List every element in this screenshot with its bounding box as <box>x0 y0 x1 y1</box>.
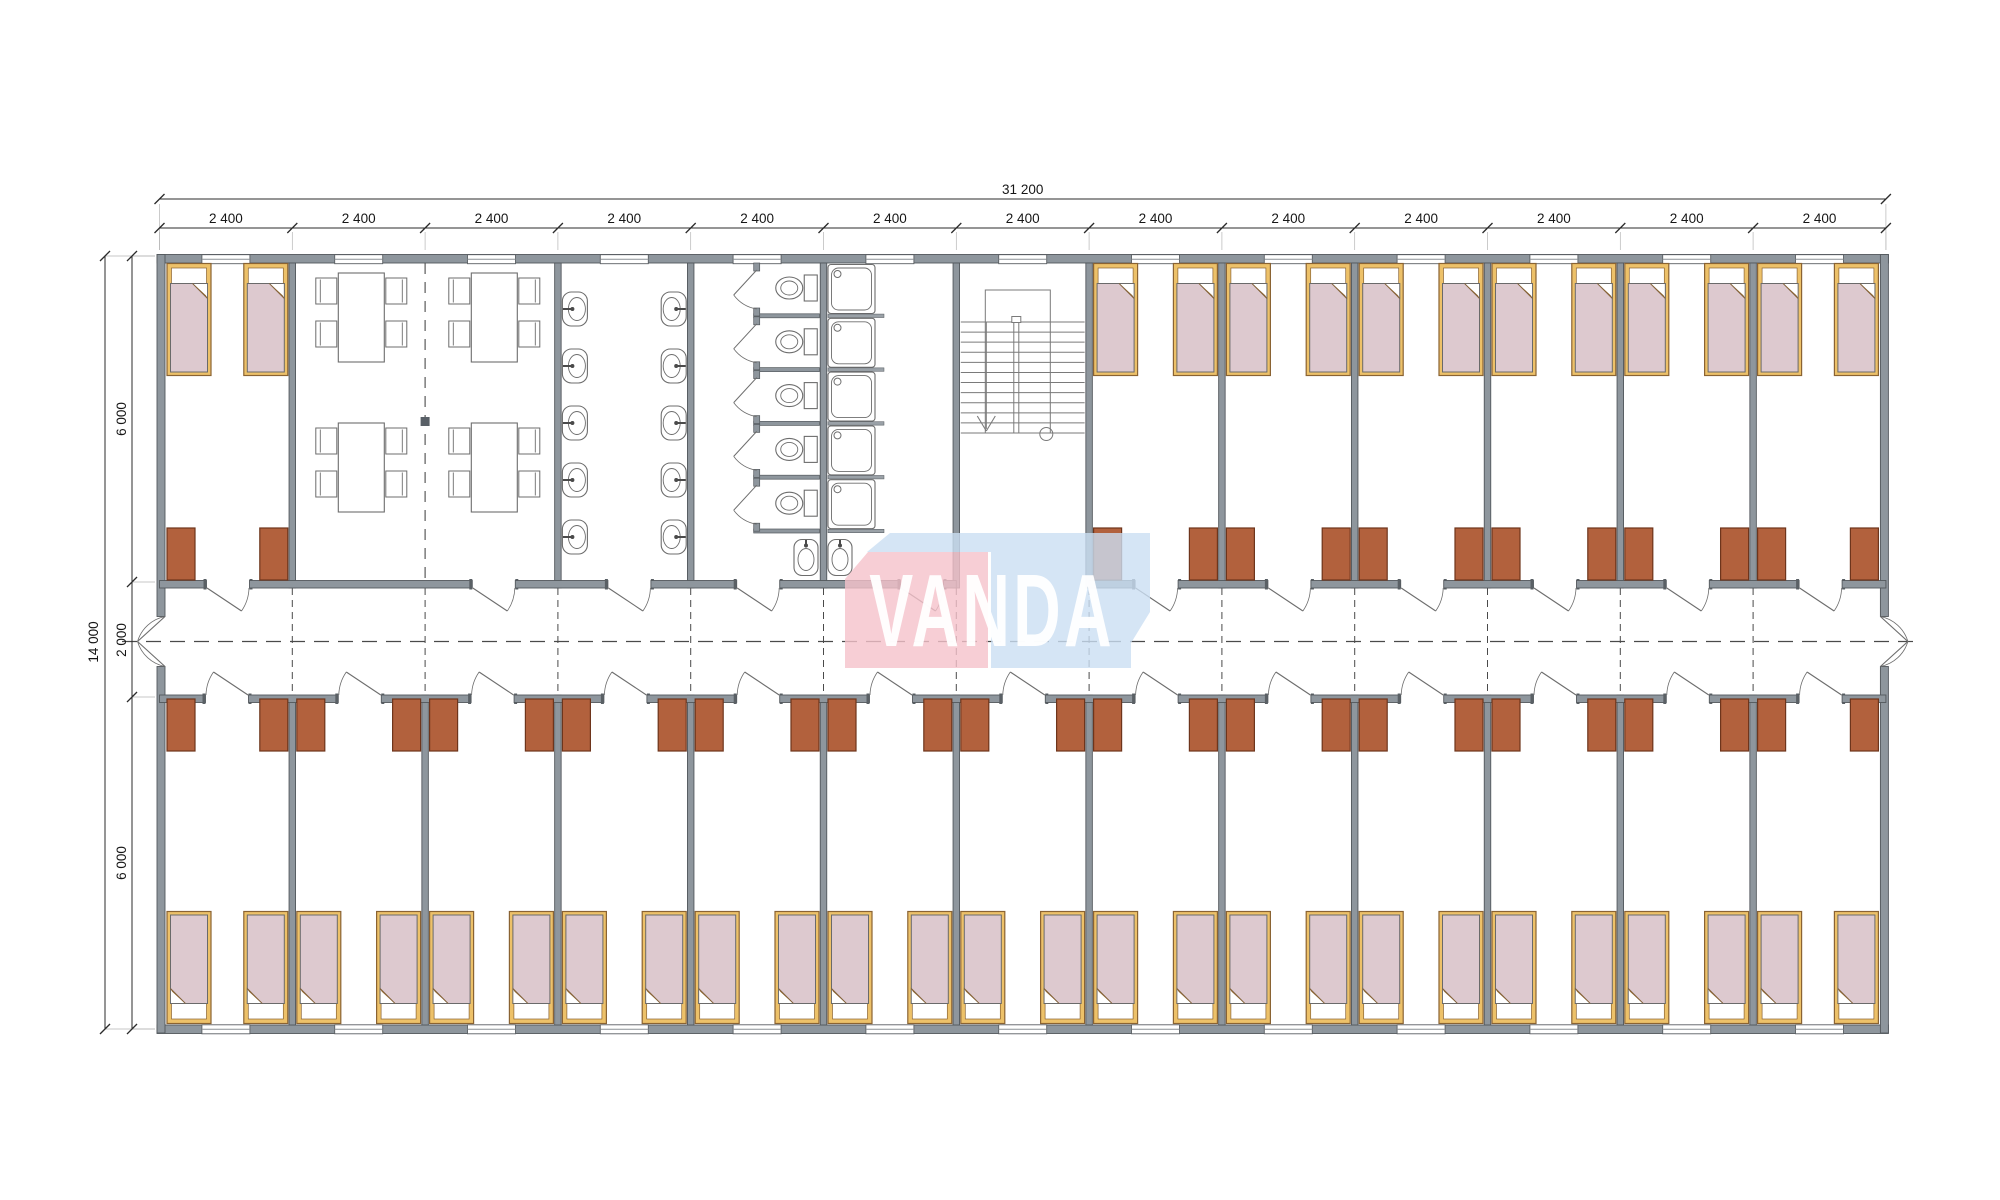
door-swing-arc <box>772 588 780 611</box>
dim-label-total-height: 14 000 <box>86 621 101 662</box>
toilet-tank <box>804 329 817 355</box>
bed-blanket <box>1230 915 1267 1004</box>
bed-icon <box>1758 912 1802 1024</box>
bed-icon <box>1359 912 1403 1024</box>
bed-blanket <box>1177 915 1214 1004</box>
wardrobe <box>1850 699 1878 751</box>
shower-drain <box>834 324 841 331</box>
door-jamb-cap <box>601 694 604 705</box>
bed-blanket <box>1496 284 1533 373</box>
toilet-bowl <box>776 331 803 353</box>
door-jamb-cap <box>1398 694 1401 705</box>
bed-icon <box>1041 912 1085 1024</box>
toilet-tank <box>804 490 817 516</box>
bed-blanket <box>964 915 1001 1004</box>
wardrobe <box>297 699 325 751</box>
bed-blanket <box>1761 284 1798 373</box>
bed-icon <box>1625 264 1669 376</box>
bed-icon <box>908 912 952 1024</box>
sink-tap-dot <box>570 307 574 311</box>
chair <box>519 428 540 454</box>
stall-jamb <box>754 424 760 432</box>
sink-icon <box>661 520 686 554</box>
stair-rail-cap <box>1012 317 1021 323</box>
dim-label-module-width: 2 400 <box>1139 211 1173 226</box>
outer-wall-left <box>157 667 165 1034</box>
stall-jamb <box>754 362 760 370</box>
wardrobe <box>1189 699 1217 751</box>
chair <box>449 428 470 454</box>
wardrobe <box>1758 528 1786 580</box>
dining-table <box>338 273 384 362</box>
bed-icon <box>642 912 686 1024</box>
door-swing-arc <box>472 672 480 695</box>
wardrobe <box>1625 699 1653 751</box>
door-jamb-cap <box>1796 694 1799 705</box>
dim-label-module-width: 2 400 <box>607 211 641 226</box>
toilet-icon <box>776 383 818 409</box>
room-wall-top <box>1351 263 1358 588</box>
wardrobe <box>1850 528 1878 580</box>
bed-blanket <box>1628 915 1665 1004</box>
dim-label-upper-depth: 6 000 <box>114 402 129 436</box>
door-leaf <box>1401 588 1436 611</box>
sink-icon <box>562 520 587 554</box>
door-jamb-cap <box>204 579 207 590</box>
bed-icon <box>1306 912 1350 1024</box>
floor-plan: 31 2002 4002 4002 4002 4002 4002 4002 40… <box>0 0 2000 1200</box>
room-wall-bottom <box>1750 695 1757 1025</box>
room-wall-bottom <box>1484 695 1491 1025</box>
corridor-wall-top <box>1577 581 1667 589</box>
bed-blanket <box>1575 915 1612 1004</box>
room-wall-top <box>289 263 296 588</box>
stall-jamb <box>754 523 760 531</box>
shower-drain <box>834 378 841 385</box>
bed-icon <box>1492 264 1536 376</box>
wardrobe <box>260 528 288 580</box>
wardrobe <box>1492 699 1520 751</box>
corridor-wall-top <box>1444 581 1534 589</box>
bed-icon <box>1572 912 1616 1024</box>
door-leaf <box>1542 672 1577 695</box>
bed-icon <box>1094 912 1138 1024</box>
chair <box>519 471 540 497</box>
dim-label-module-width: 2 400 <box>1006 211 1040 226</box>
stair-opening-outline <box>985 290 1050 433</box>
bed-blanket <box>433 915 470 1004</box>
entrance-door-leaf <box>1880 642 1908 667</box>
door-jamb-cap <box>999 694 1002 705</box>
wardrobe <box>1625 528 1653 580</box>
shower-drain <box>834 432 841 439</box>
chair <box>316 471 337 497</box>
dim-label-module-width: 2 400 <box>1670 211 1704 226</box>
door-swing-arc <box>1436 588 1444 611</box>
stall-door-arc <box>734 403 757 417</box>
bed-blanket <box>832 915 869 1004</box>
wardrobe <box>430 699 458 751</box>
wardrobe <box>924 699 952 751</box>
chair <box>449 278 470 304</box>
door-jamb-cap <box>1663 694 1666 705</box>
door-leaf <box>1674 672 1709 695</box>
chair <box>519 321 540 347</box>
door-jamb-cap <box>1265 579 1268 590</box>
door-leaf <box>479 672 513 695</box>
dim-label-module-width: 2 400 <box>209 211 243 226</box>
room-wall-top <box>1484 263 1491 588</box>
dim-label-module-width: 2 400 <box>1537 211 1571 226</box>
corridor-wall-top <box>1842 581 1886 589</box>
room-wall-bottom <box>953 695 960 1025</box>
stall-partition <box>754 529 820 533</box>
door-jamb-cap <box>1531 579 1534 590</box>
room-wall-top <box>687 263 694 588</box>
room-wall-bottom <box>687 695 694 1025</box>
wardrobe <box>562 699 590 751</box>
shower-drain <box>834 486 841 493</box>
door-swing-arc <box>1569 588 1577 611</box>
room-wall-bottom <box>820 695 827 1025</box>
room-wall-bottom <box>289 695 296 1025</box>
sink-tap-dot <box>674 421 678 425</box>
bed-blanket <box>513 915 550 1004</box>
bed-blanket <box>300 915 337 1004</box>
wardrobe <box>1359 699 1387 751</box>
door-jamb-cap <box>734 579 737 590</box>
stall-door-arc <box>734 510 757 524</box>
wardrobe <box>1758 699 1786 751</box>
bed-icon <box>297 912 341 1024</box>
shower-drain <box>834 271 841 278</box>
stall-jamb <box>754 317 760 325</box>
bed-icon <box>1226 912 1270 1024</box>
door-leaf <box>1807 672 1842 695</box>
shower-partition <box>828 368 884 372</box>
door-jamb-cap <box>1265 694 1268 705</box>
bed-blanket <box>646 915 683 1004</box>
wardrobe <box>393 699 421 751</box>
door-swing-arc <box>1136 672 1144 695</box>
wardrobe <box>961 699 989 751</box>
outer-wall-right <box>1880 255 1888 617</box>
door-swing-arc <box>737 672 745 695</box>
bed-icon <box>562 912 606 1024</box>
bed-icon <box>1758 264 1802 376</box>
bed-icon <box>167 264 211 376</box>
stair-arrowhead <box>986 416 995 431</box>
door-leaf <box>1010 672 1045 695</box>
stall-jamb <box>754 469 760 477</box>
bed-icon <box>1173 264 1217 376</box>
bed-blanket <box>1761 915 1798 1004</box>
door-swing-arc <box>643 588 651 611</box>
stall-partition <box>754 421 820 425</box>
sink-tap-dot <box>570 421 574 425</box>
bed-blanket <box>566 915 603 1004</box>
bed-blanket <box>1363 915 1400 1004</box>
bed-blanket <box>1443 915 1480 1004</box>
dim-label-corridor-width: 2 000 <box>114 623 129 657</box>
shower-partition <box>828 529 884 533</box>
bed-blanket <box>1363 284 1400 373</box>
shower-tray-icon <box>828 426 875 475</box>
door-swing-arc <box>604 672 612 695</box>
sink-icon <box>562 349 587 383</box>
wardrobe <box>1322 699 1350 751</box>
bed-blanket <box>247 284 284 373</box>
bed-blanket <box>1310 284 1347 373</box>
sink-icon <box>794 540 818 576</box>
corridor-wall-top <box>250 581 473 589</box>
chair <box>386 321 407 347</box>
door-leaf <box>1268 588 1303 611</box>
entrance-door-leaf <box>138 642 166 667</box>
dim-label-lower-depth: 6 000 <box>114 846 129 880</box>
wardrobe <box>1359 528 1387 580</box>
door-swing-arc <box>1303 588 1311 611</box>
door-leaf <box>1143 672 1178 695</box>
door-jamb-cap <box>1398 579 1401 590</box>
bed-icon <box>1834 264 1878 376</box>
bed-icon <box>377 912 421 1024</box>
sink-tap-dot <box>674 535 678 539</box>
shower-partition <box>828 475 884 479</box>
toilet-bowl <box>776 385 803 407</box>
stall-jamb <box>754 478 760 486</box>
bed-blanket <box>1838 284 1875 373</box>
dim-label-module-width: 2 400 <box>1404 211 1438 226</box>
shower-tray-icon <box>828 318 875 367</box>
toilet-tank <box>804 275 817 301</box>
bed-blanket <box>1230 284 1267 373</box>
stall-partition <box>754 314 820 318</box>
door-swing-arc <box>1003 672 1011 695</box>
wardrobe <box>1588 699 1616 751</box>
bed-blanket <box>171 284 208 373</box>
bed-icon <box>1226 264 1270 376</box>
toilet-bowl <box>776 438 803 460</box>
door-swing-arc <box>242 588 250 611</box>
bed-icon <box>1306 264 1350 376</box>
staircase <box>961 290 1085 441</box>
bed-icon <box>828 912 872 1024</box>
shower-tray-icon <box>828 480 875 529</box>
bed-icon <box>695 912 739 1024</box>
bed-blanket <box>247 915 284 1004</box>
room-wall-top <box>820 263 827 588</box>
bed-blanket <box>1310 915 1347 1004</box>
door-jamb-cap <box>203 694 206 705</box>
door-swing-arc <box>1800 672 1808 695</box>
door-leaf <box>346 672 381 695</box>
stall-jamb <box>754 308 760 316</box>
toilet-icon <box>776 490 818 516</box>
door-leaf <box>1534 588 1569 611</box>
entrance-door-leaf <box>1880 617 1908 642</box>
door-leaf <box>608 588 643 611</box>
bed-icon <box>1705 912 1749 1024</box>
door-jamb-cap <box>734 694 737 705</box>
door-leaf <box>473 588 508 611</box>
bed-icon <box>775 912 819 1024</box>
wardrobe <box>525 699 553 751</box>
sink-icon <box>661 406 686 440</box>
room-wall-top <box>1617 263 1624 588</box>
bed-icon <box>1572 264 1616 376</box>
toilet-icon <box>776 329 818 355</box>
dim-label-module-width: 2 400 <box>873 211 907 226</box>
door-jamb-cap <box>1531 694 1534 705</box>
stall-jamb <box>754 416 760 424</box>
bed-blanket <box>1177 284 1214 373</box>
wardrobe <box>1226 699 1254 751</box>
bed-icon <box>1705 264 1749 376</box>
bed-icon <box>1439 264 1483 376</box>
room-wall-bottom <box>555 695 562 1025</box>
sink-icon <box>562 463 587 497</box>
stall-door-leaf <box>734 485 757 510</box>
wardrobe <box>167 699 195 751</box>
dim-label-module-width: 2 400 <box>1271 211 1305 226</box>
dim-label-module-width: 2 400 <box>475 211 509 226</box>
door-swing-arc <box>1268 672 1276 695</box>
sink-tap-dot <box>570 535 574 539</box>
bed-blanket <box>1708 284 1745 373</box>
sink-icon <box>562 406 587 440</box>
shower-tray-icon <box>828 265 875 314</box>
bed-icon <box>1492 912 1536 1024</box>
door-swing-arc <box>1834 588 1842 611</box>
sink-icon <box>562 292 587 326</box>
stall-door-leaf <box>734 378 757 403</box>
door-leaf <box>1800 588 1835 611</box>
corridor-wall-top <box>651 581 737 589</box>
wardrobe <box>1094 699 1122 751</box>
bed-icon <box>1359 264 1403 376</box>
stall-partition <box>754 368 820 372</box>
bed-blanket <box>1443 284 1480 373</box>
wardrobe <box>1057 699 1085 751</box>
wardrobe <box>1189 528 1217 580</box>
dining-table <box>471 273 517 362</box>
bed-blanket <box>1838 915 1875 1004</box>
chair <box>449 321 470 347</box>
shower-partition <box>828 422 884 426</box>
sink-tap-dot <box>674 364 678 368</box>
bed-blanket <box>1097 915 1134 1004</box>
dim-label-module-width: 2 400 <box>1803 211 1837 226</box>
door-swing-arc <box>1170 588 1178 611</box>
door-swing-arc <box>206 672 214 695</box>
stall-door-leaf <box>734 270 757 295</box>
door-leaf <box>612 672 647 695</box>
stall-door-leaf <box>734 324 757 349</box>
door-jamb-cap <box>468 694 471 705</box>
door-swing-arc <box>870 672 878 695</box>
room-wall-bottom <box>422 695 429 1025</box>
door-jamb-cap <box>469 579 472 590</box>
room-wall-bottom <box>1351 695 1358 1025</box>
wardrobe <box>695 699 723 751</box>
stall-door-arc <box>734 456 757 470</box>
bed-icon <box>244 264 288 376</box>
door-leaf <box>1667 588 1702 611</box>
bed-icon <box>1173 912 1217 1024</box>
bed-blanket <box>380 915 417 1004</box>
shower-partition <box>828 314 884 318</box>
door-leaf <box>878 672 913 695</box>
bed-blanket <box>1496 915 1533 1004</box>
sink-tap-dot <box>838 544 842 548</box>
door-swing-arc <box>339 672 347 695</box>
wardrobe <box>1721 699 1749 751</box>
room-wall-bottom <box>1086 695 1093 1025</box>
wardrobe <box>1322 528 1350 580</box>
bed-blanket <box>1575 284 1612 373</box>
bed-icon <box>1094 264 1138 376</box>
wardrobe <box>1492 528 1520 580</box>
stall-jamb <box>754 263 760 271</box>
chair <box>386 278 407 304</box>
dining-table <box>471 423 517 512</box>
door-leaf <box>214 672 249 695</box>
wardrobe <box>1588 528 1616 580</box>
door-swing-arc <box>1701 588 1709 611</box>
door-jamb-cap <box>867 694 870 705</box>
corridor-wall-top <box>1709 581 1799 589</box>
door-swing-arc <box>507 588 515 611</box>
bed-blanket <box>699 915 736 1004</box>
bed-icon <box>167 912 211 1024</box>
door-jamb-cap <box>335 694 338 705</box>
corridor-wall-top <box>1311 581 1401 589</box>
toilet-icon <box>776 436 818 462</box>
door-leaf <box>1276 672 1311 695</box>
floor-plan-page: 31 2002 4002 4002 4002 4002 4002 4002 40… <box>0 0 2000 1200</box>
room-wall-bottom <box>1219 695 1226 1025</box>
dim-label-module-width: 2 400 <box>740 211 774 226</box>
sink-icon <box>661 463 686 497</box>
corridor-wall-top <box>160 581 207 589</box>
shower-tray-icon <box>828 372 875 421</box>
grid-node-square <box>421 417 430 426</box>
corridor-wall-top <box>1178 581 1268 589</box>
room-wall-bottom <box>1617 695 1624 1025</box>
wardrobe <box>791 699 819 751</box>
stall-door-arc <box>734 349 757 363</box>
outer-wall-left <box>157 255 165 617</box>
chair <box>386 471 407 497</box>
bed-icon <box>1439 912 1483 1024</box>
wardrobe <box>1721 528 1749 580</box>
sink-icon <box>661 349 686 383</box>
bed-blanket <box>1628 284 1665 373</box>
wardrobe <box>828 699 856 751</box>
door-jamb-cap <box>605 579 608 590</box>
bed-icon <box>509 912 553 1024</box>
bed-icon <box>1834 912 1878 1024</box>
sink-tap-dot <box>674 307 678 311</box>
door-leaf <box>1409 672 1444 695</box>
sink-tap-dot <box>570 478 574 482</box>
sink-tap-dot <box>804 544 808 548</box>
chair <box>316 321 337 347</box>
sink-icon <box>828 540 852 576</box>
logo-wordmark: VANDA <box>869 554 1114 668</box>
chair <box>449 471 470 497</box>
